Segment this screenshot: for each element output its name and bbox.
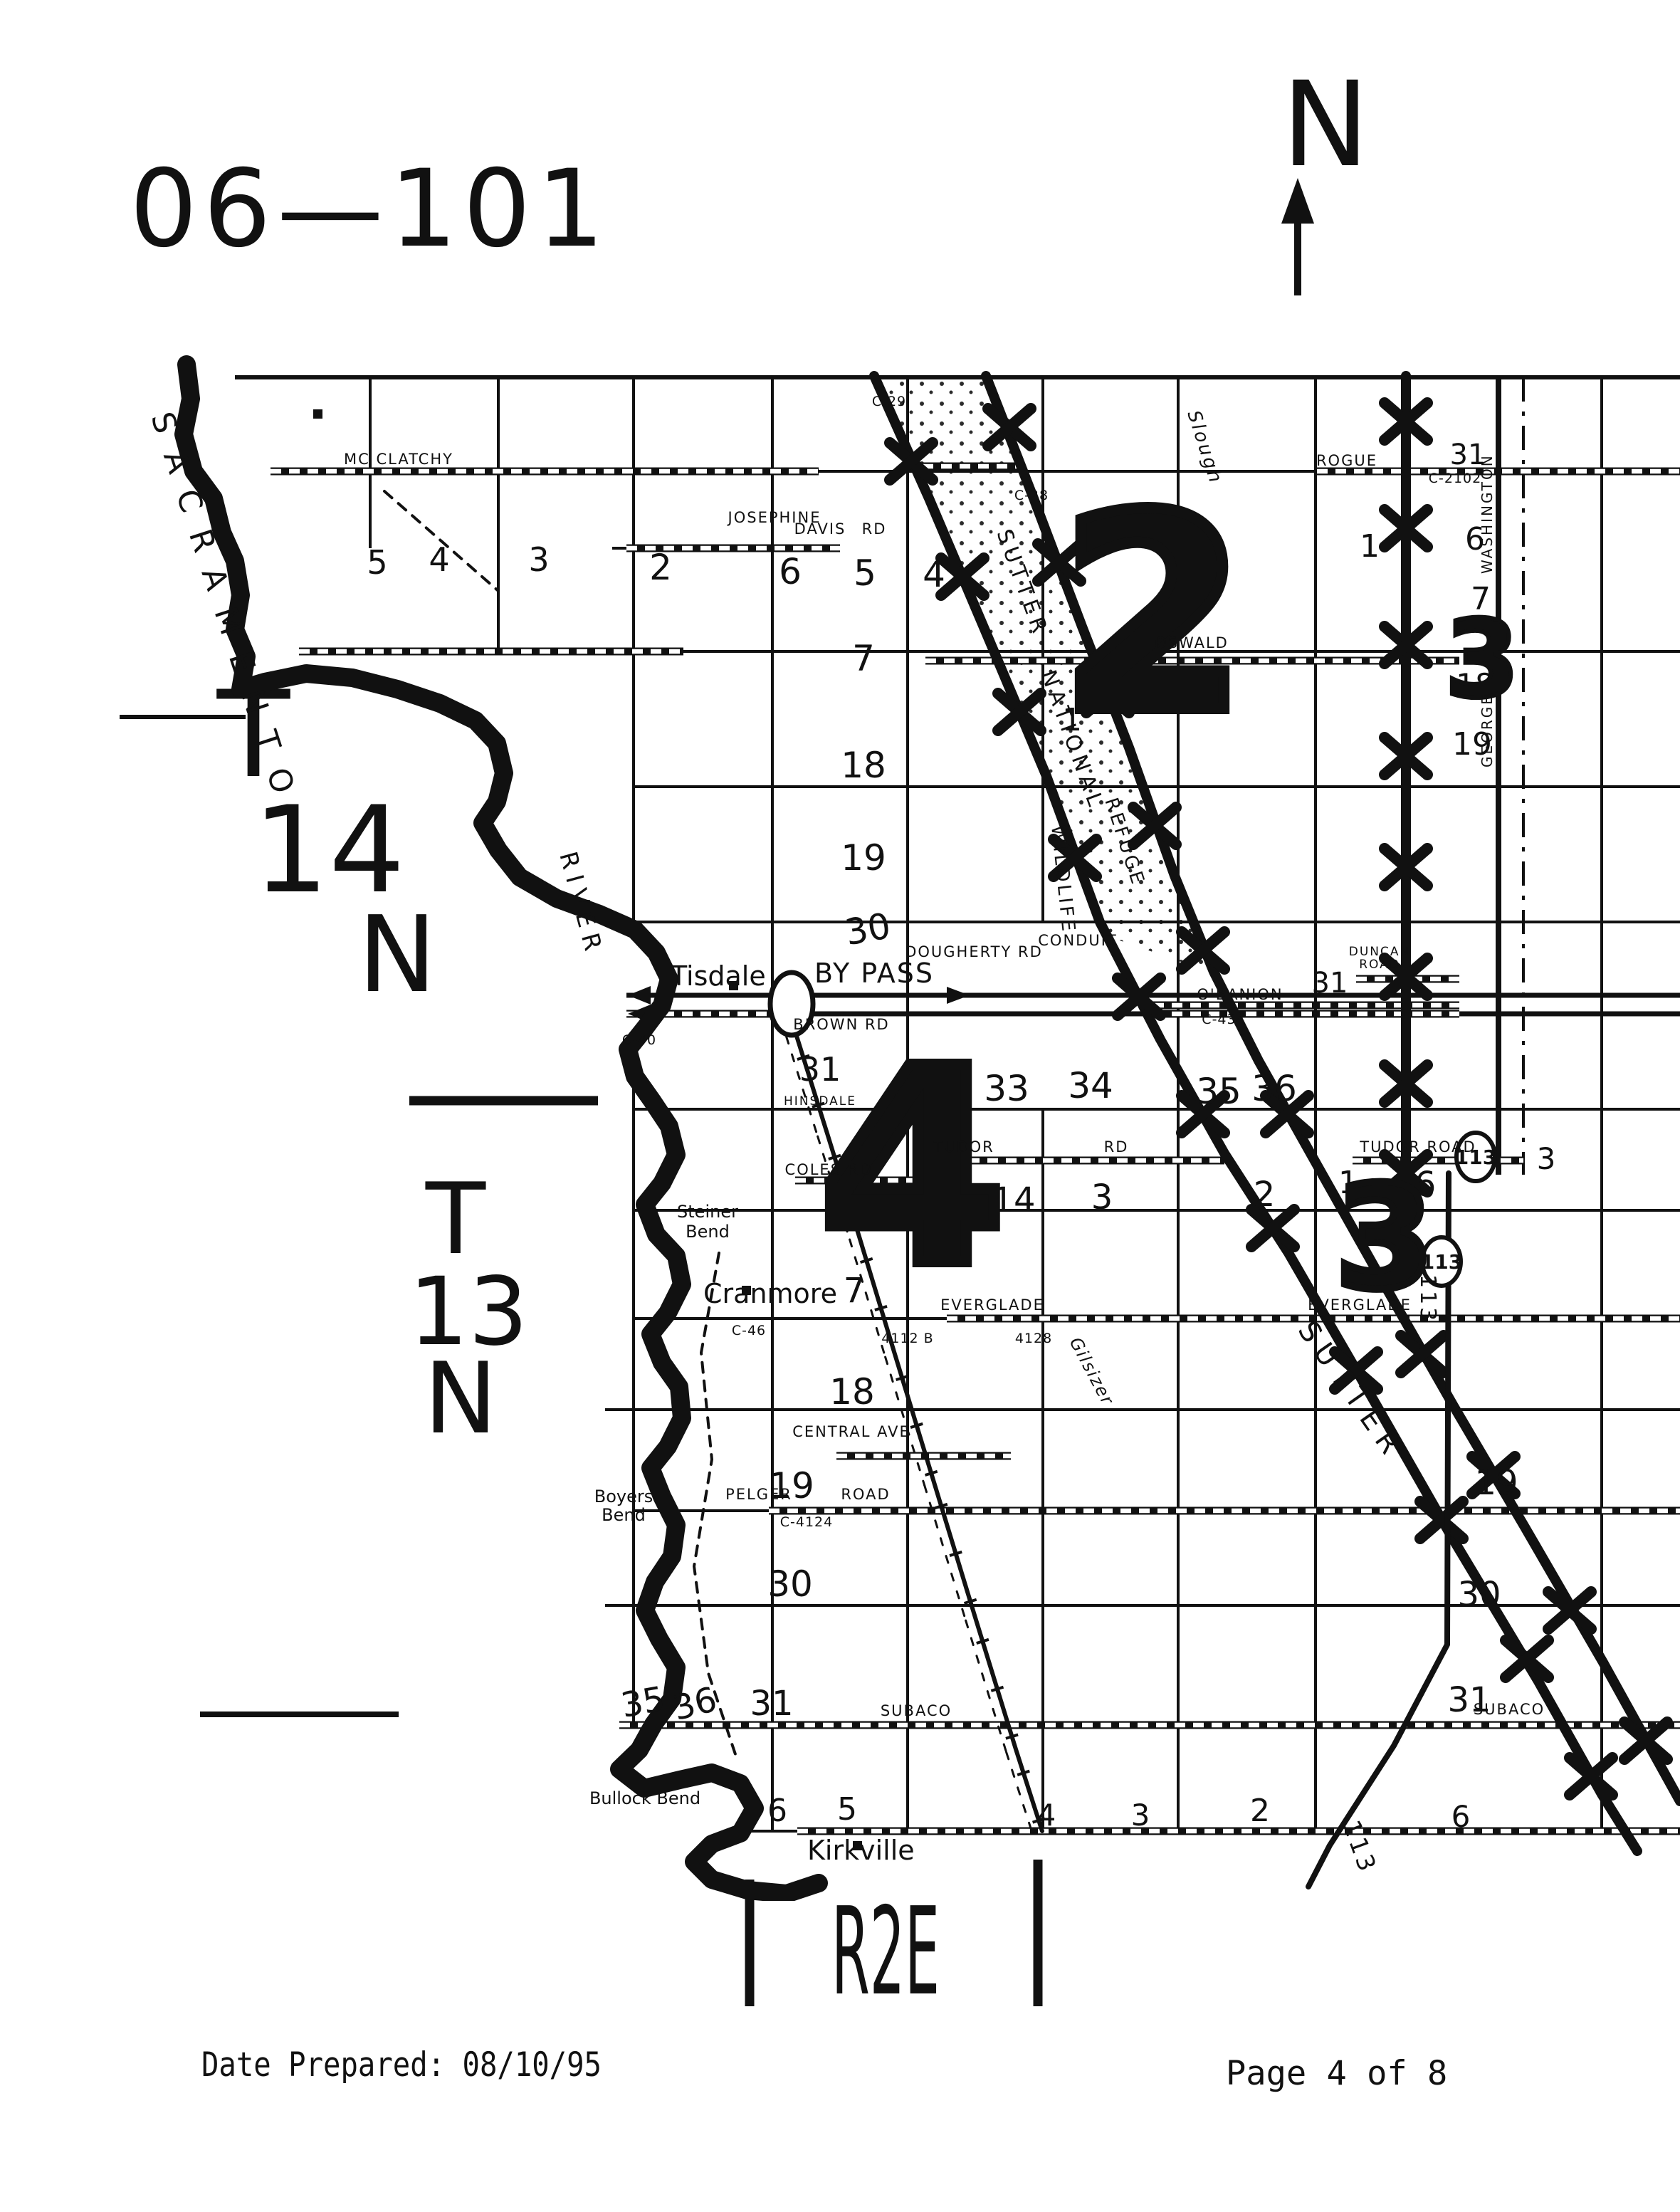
range-label: R2E — [831, 1882, 940, 2023]
town-label: Tisdale — [670, 960, 766, 992]
road-label: DUNCAN — [1349, 945, 1410, 959]
road-label: EVERGLADE — [1308, 1296, 1412, 1314]
road-label: PELGER — [725, 1486, 792, 1503]
date-prepared: Date Prepared: 08/10/95 — [201, 2045, 602, 2085]
section-number: 3 — [528, 540, 549, 579]
section-number: 4 — [429, 540, 449, 579]
road-label: BROWN RD — [793, 1016, 889, 1033]
road-code-label: C-28 — [1014, 488, 1049, 503]
road-label: RD — [862, 520, 887, 538]
road-code-label: 4128 — [1015, 1331, 1052, 1346]
section-number: 31 — [1312, 967, 1348, 1000]
section-number: 4 — [1037, 1798, 1056, 1833]
town-label: Kirkville — [807, 1835, 915, 1866]
section-number: 7 — [852, 638, 875, 679]
road-label: DAVIS — [794, 520, 846, 538]
section-number: 30 — [767, 1563, 813, 1605]
section-number: 6 — [779, 551, 802, 592]
bend-label: Bend — [602, 1505, 646, 1525]
north-label: N — [1281, 56, 1369, 193]
scanned-map-document: 06—101 N T 14 N T 13 N R2E Date Prepared… — [0, 0, 1680, 2212]
road-code-label: C-29 — [872, 394, 906, 409]
town-label: Cranmore — [703, 1278, 837, 1309]
section-number: 18 — [829, 1371, 875, 1412]
bend-label: Bullock Bend — [589, 1788, 700, 1808]
section-number: 18 — [841, 745, 886, 786]
road-label: EVERGLADE — [940, 1296, 1044, 1314]
t14n-n: N — [358, 893, 437, 1016]
road-code-label: C-40 — [622, 1032, 656, 1048]
road-label: COLES RD — [785, 1161, 873, 1178]
section-number: 36 — [1251, 1068, 1297, 1109]
section-number: 31 — [750, 1684, 793, 1724]
bend-label: Steiner — [677, 1202, 738, 1222]
t13n-n: N — [424, 1341, 497, 1456]
map-page-canvas: 06—101 N T 14 N T 13 N R2E Date Prepared… — [0, 0, 1680, 2212]
section-number: 2 — [1254, 1175, 1276, 1215]
bend-label: Boyers — [594, 1487, 653, 1506]
section-number: 4 — [923, 554, 945, 595]
section-number: 19 — [841, 837, 886, 879]
road-code-label: C-434 — [1202, 1012, 1245, 1027]
feature-label: WASHINGTON — [1479, 454, 1496, 574]
bend-label: Bend — [686, 1222, 730, 1242]
road-label: SUBACO — [881, 1702, 952, 1719]
section-number: 6 — [767, 1793, 787, 1829]
road-label: BY PASS — [814, 958, 934, 989]
road-code-label: C-2102 — [1429, 471, 1481, 486]
feature-label: GEORGE — [1479, 693, 1496, 767]
road-label: OSWALD — [1155, 634, 1229, 651]
page-number: Page 4 of 8 — [1226, 2054, 1447, 2093]
road-label: O'BANION — [1197, 986, 1283, 1003]
section-number: 35 — [1196, 1071, 1241, 1112]
road-label: TUDOR ROAD — [1359, 1138, 1476, 1155]
section-number: 3 — [1131, 1798, 1150, 1833]
section-number: 5 — [837, 1791, 857, 1828]
road-label: RD — [1104, 1138, 1129, 1155]
section-number: 6 — [1451, 1799, 1471, 1834]
road-label: CENTRAL AVE — [792, 1423, 910, 1440]
section-number: 3 — [1091, 1178, 1113, 1217]
section-number: 30 — [1457, 1575, 1501, 1615]
road-label: MC CLATCHY — [344, 451, 453, 468]
section-number: 5 — [854, 552, 876, 594]
road-label: ROAD — [1359, 958, 1400, 972]
section-number: 34 — [1068, 1065, 1113, 1106]
feature-label: 113 — [1415, 1274, 1440, 1323]
section-number: 1 — [1360, 528, 1380, 565]
building-square — [313, 409, 322, 419]
map-id: 06—101 — [130, 147, 610, 271]
section-number: 5 — [367, 543, 387, 582]
road-code-label: 4112 B — [881, 1331, 933, 1346]
road-label: TUDOR — [933, 1138, 994, 1155]
road-label: ROAD — [841, 1486, 890, 1503]
road-code-label: C-46 — [732, 1323, 766, 1338]
section-number: 30 — [842, 905, 894, 953]
section-number: 3 — [1537, 1141, 1556, 1176]
section-number: 35 — [618, 1679, 668, 1726]
road-label: ROGUE — [1316, 452, 1377, 469]
road-code-label: C-4124 — [780, 1514, 833, 1530]
road-label: HINSDALE — [784, 1094, 856, 1108]
big-section-number: 2 — [1059, 457, 1247, 772]
section-number: 2 — [1250, 1793, 1270, 1829]
section-number: 19 — [1474, 1463, 1518, 1503]
road-label: CONDUIT — [1038, 932, 1117, 949]
section-number: 2 — [649, 547, 672, 588]
road-label: SUBACO — [1474, 1701, 1545, 1718]
